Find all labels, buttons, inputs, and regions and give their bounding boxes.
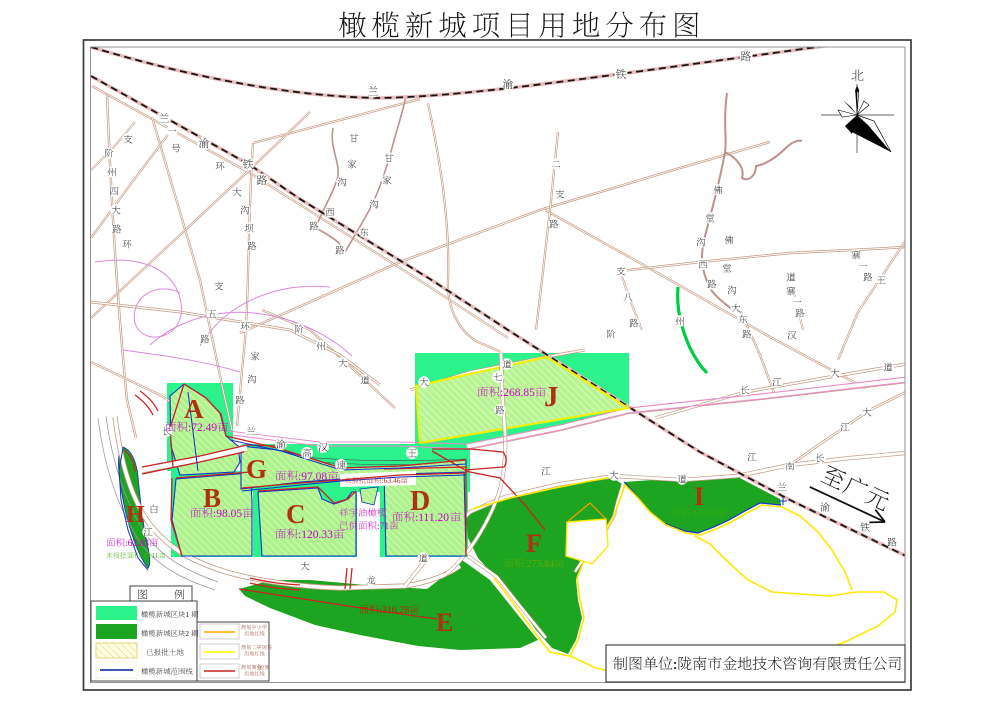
svg-text::71: :71 — [377, 522, 389, 532]
svg-text:F: F — [526, 529, 542, 558]
svg-text:业: 业 — [257, 663, 262, 671]
svg-text::111.20: :111.20 — [415, 512, 449, 524]
svg-text::273.84: :273.84 — [524, 559, 554, 570]
svg-text:E: E — [436, 608, 453, 637]
svg-text:1: 1 — [185, 610, 189, 619]
svg-text:A: A — [184, 394, 204, 424]
svg-text:J: J — [544, 381, 559, 413]
svg-text::72.49: :72.49 — [188, 422, 217, 434]
svg-text:I: I — [694, 482, 704, 511]
svg-text::120.33: :120.33 — [298, 529, 333, 541]
svg-text::43.11: :43.11 — [141, 552, 159, 560]
svg-text::: : — [673, 657, 677, 673]
svg-text::63.46: :63.46 — [382, 476, 401, 485]
svg-text:G: G — [246, 454, 267, 484]
svg-text:H: H — [126, 502, 145, 528]
svg-text:C: C — [286, 499, 306, 529]
svg-text::62.83: :62.83 — [125, 539, 149, 549]
svg-text::316.28: :316.28 — [379, 605, 409, 616]
svg-text:2: 2 — [185, 629, 189, 638]
svg-text::268.85: :268.85 — [500, 387, 535, 399]
svg-text::97.08: :97.08 — [298, 471, 327, 483]
svg-text::98.05: :98.05 — [213, 508, 242, 520]
svg-text::125.76: :125.76 — [690, 508, 718, 518]
